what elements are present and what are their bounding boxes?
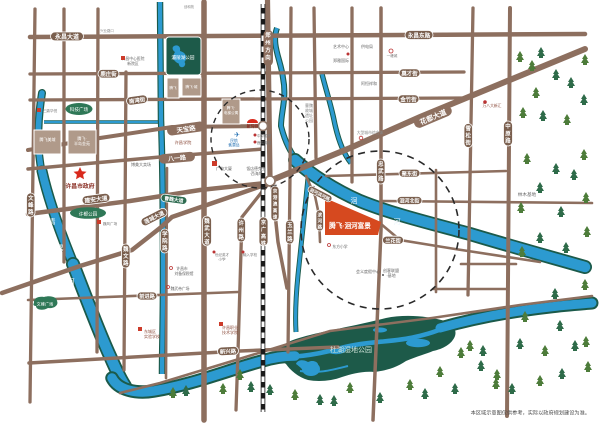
svg-text:实验学校: 实验学校 [144, 333, 160, 339]
svg-text:腾飞·洄河富景: 腾飞·洄河富景 [328, 221, 371, 230]
svg-text:·基地: ·基地 [386, 272, 395, 278]
svg-text:聚东街: 聚东街 [401, 169, 418, 177]
svg-text:郑雅国际: 郑雅国际 [333, 57, 349, 63]
svg-text:输入学校: 输入学校 [243, 252, 258, 257]
svg-text:京港澳高速: 京港澳高速 [273, 188, 278, 221]
svg-text:科技广场: 科技广场 [70, 106, 89, 113]
svg-text:中原路: 中原路 [505, 122, 511, 144]
svg-text:艺术中心: 艺术中心 [333, 43, 349, 49]
svg-text:曹魏故城遗址公园: 曹魏故城遗址公园 [305, 102, 313, 123]
svg-text:·西海岸: ·西海岸 [250, 171, 263, 176]
svg-text:洄: 洄 [351, 197, 358, 205]
svg-text:小学: 小学 [218, 257, 226, 262]
svg-text:会义度假中心: 会义度假中心 [356, 268, 380, 274]
svg-text:许昌中心医院: 许昌中心医院 [122, 56, 145, 61]
svg-text:阿恒祥和: 阿恒祥和 [361, 80, 377, 86]
svg-text:河: 河 [68, 278, 75, 286]
svg-text:魏文路: 魏文路 [122, 245, 129, 267]
svg-text:文峰广场: 文峰广场 [37, 301, 54, 308]
svg-text:腾飞: 腾飞 [169, 85, 177, 90]
svg-text:饭店德克士: 饭店德克士 [247, 166, 266, 171]
svg-text:滨河路: 滨河路 [316, 212, 322, 231]
svg-text:半岛金苑: 半岛金苑 [74, 140, 90, 146]
svg-text:玉兰路: 玉兰路 [287, 221, 293, 243]
svg-text:前进路: 前进路 [139, 292, 155, 300]
svg-text:许都公园: 许都公园 [79, 210, 98, 217]
svg-text:电梯公寓: 电梯公寓 [224, 110, 239, 115]
svg-text:腾飞·: 腾飞· [227, 105, 235, 110]
svg-text:兴业路口: 兴业路口 [100, 28, 114, 33]
svg-text:技术学院: 技术学院 [222, 329, 238, 335]
svg-text:文峰路: 文峰路 [28, 194, 34, 216]
svg-text:奠才街: 奠才街 [400, 69, 418, 77]
svg-text:林木基地: 林木基地 [518, 191, 537, 198]
svg-text:鹿庄街: 鹿庄街 [99, 70, 117, 78]
svg-text:许州路: 许州路 [237, 219, 244, 241]
svg-text:腾飞·城: 腾飞·城 [186, 84, 198, 89]
svg-text:清: 清 [49, 217, 56, 226]
svg-text:腾飞美域: 腾飞美域 [40, 136, 56, 142]
svg-text:兰花街: 兰花街 [385, 236, 401, 244]
svg-text:博美大卖场: 博美大卖场 [131, 161, 151, 167]
svg-text:一峰城: 一峰城 [387, 53, 398, 58]
svg-text:✈: ✈ [234, 132, 240, 139]
svg-text:灞陵湖公园: 灞陵湖公园 [172, 54, 195, 61]
svg-text:郑州方向: 郑州方向 [264, 31, 271, 62]
svg-text:潩: 潩 [57, 243, 64, 252]
svg-text:刘备保税馆: 刘备保税馆 [175, 271, 194, 276]
svg-text:供电局: 供电局 [361, 43, 373, 49]
svg-text:魏武大道: 魏武大道 [203, 217, 210, 246]
svg-text:许昌学院: 许昌学院 [175, 139, 193, 146]
svg-text:魏武帝广场: 魏武帝广场 [171, 286, 190, 291]
svg-text:许昌市: 许昌市 [176, 266, 188, 271]
svg-text:许昌市政府: 许昌市政府 [66, 182, 95, 190]
svg-text:雪松街: 雪松街 [464, 125, 471, 147]
svg-text:新院区: 新院区 [127, 61, 139, 66]
svg-text:中原国贸: 中原国贸 [257, 133, 272, 138]
svg-text:永昌东路: 永昌东路 [408, 31, 431, 39]
svg-text:东方小学: 东方小学 [332, 244, 347, 249]
svg-text:三鼎华悦: 三鼎华悦 [43, 108, 58, 113]
svg-text:大型城市综合体: 大型城市综合体 [357, 130, 384, 135]
svg-text:创和苑: 创和苑 [184, 4, 195, 9]
svg-text:金竹街: 金竹街 [399, 95, 417, 103]
svg-text:广电大厦: 广电大厦 [216, 165, 232, 171]
svg-text:万八大新汇: 万八大新汇 [483, 103, 502, 108]
svg-text:鹿鸣湖站: 鹿鸣湖站 [257, 140, 272, 145]
svg-text:魏风广场: 魏风广场 [103, 221, 118, 226]
svg-text:新玛特: 新玛特 [247, 124, 259, 129]
svg-text:杜湖湿地公园: 杜湖湿地公园 [330, 345, 372, 354]
svg-text:京广高铁: 京广高铁 [261, 218, 267, 247]
svg-text:本区域示意图仅供参考，实际以政府规划建设为准。: 本区域示意图仅供参考，实际以政府规划建设为准。 [471, 409, 590, 417]
svg-text:学院路: 学院路 [162, 230, 168, 252]
svg-text:忠武路: 忠武路 [378, 160, 384, 182]
svg-text:世纪英才: 世纪英才 [215, 252, 230, 257]
svg-text:洄河北街: 洄河北街 [399, 198, 419, 205]
svg-text:河: 河 [394, 218, 401, 226]
svg-text:永昌大道: 永昌大道 [54, 33, 79, 41]
